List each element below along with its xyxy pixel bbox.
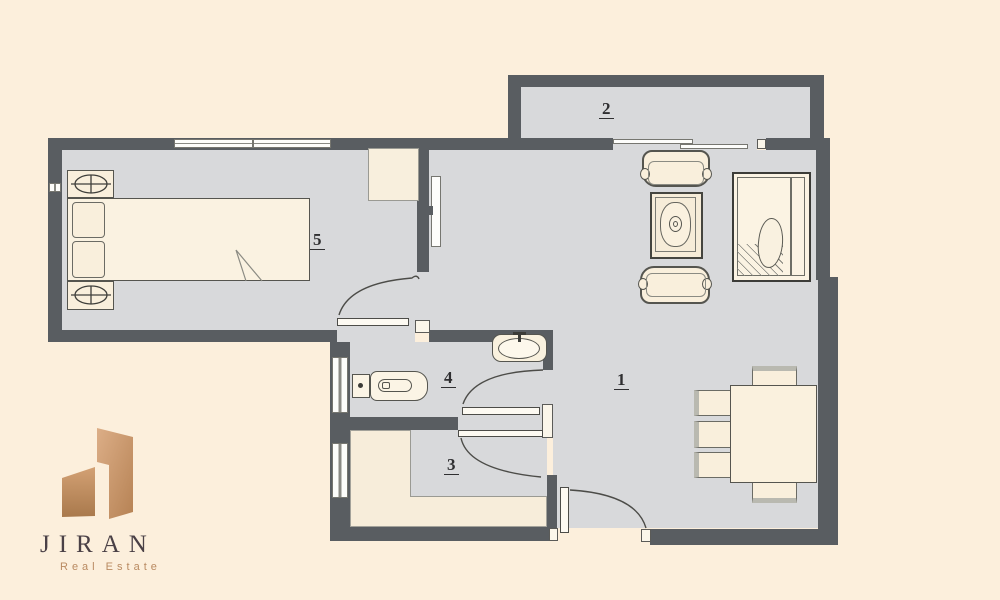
armchair-top xyxy=(642,150,710,187)
kitchen-floor xyxy=(410,430,547,497)
bathroom-door-jamb xyxy=(542,404,553,438)
bedroom-window-2 xyxy=(253,139,331,148)
room-label-living-room: 1 xyxy=(614,371,629,390)
dining-table xyxy=(730,385,817,483)
entrance-jamb-left xyxy=(549,528,558,541)
balcony-floor xyxy=(521,87,810,139)
rug-center-icon xyxy=(669,216,682,232)
wall-right-upper xyxy=(816,150,830,280)
tv-cabinet-divider xyxy=(790,177,792,276)
toilet-bowl-inner xyxy=(378,379,412,392)
wall-entry-stub xyxy=(547,475,557,531)
dining-chair-bottom xyxy=(752,481,797,503)
armchair-seat-line xyxy=(648,161,704,185)
shaft-window-2 xyxy=(332,443,348,498)
toilet-flush-dot xyxy=(358,383,363,388)
balcony-wall-right xyxy=(810,87,824,140)
dining-chair-left-3 xyxy=(694,452,734,478)
bed-pillow-2 xyxy=(72,241,105,278)
slider-jamb xyxy=(757,139,766,149)
floor-plan-canvas: 1 2 3 4 5 JIRAN Real Estate xyxy=(0,0,1000,600)
nightstand-bottom xyxy=(67,281,114,310)
room-label-kitchen: 3 xyxy=(444,456,459,475)
bathroom-sink xyxy=(492,334,547,362)
wall-bottom-left xyxy=(330,527,557,541)
bedroom-window-1 xyxy=(174,139,253,148)
left-wall-vent xyxy=(49,183,61,192)
wall-bathroom-bottom xyxy=(330,417,458,430)
bed-pillow-1 xyxy=(72,202,105,238)
toilet-tank xyxy=(352,374,370,398)
bedroom-door-leaf xyxy=(337,318,409,326)
bedroom-closet xyxy=(368,148,419,201)
wall-right-lower xyxy=(818,277,838,545)
dining-chair-left-1 xyxy=(694,390,734,416)
room-label-bathroom: 4 xyxy=(441,369,456,388)
kitchen-door-leaf xyxy=(458,430,543,437)
room-label-balcony: 2 xyxy=(599,100,614,119)
area-rug xyxy=(650,192,703,259)
room-label-bedroom: 5 xyxy=(310,231,325,250)
shaft-window-1 xyxy=(332,357,348,413)
brand-name: JIRAN xyxy=(40,531,156,559)
balcony-wall-left xyxy=(508,75,521,140)
brand-logo-icon xyxy=(55,420,145,525)
entrance-jamb-right xyxy=(641,529,651,542)
armchair-seat-line xyxy=(646,273,706,297)
bedroom-sliding-door-handle xyxy=(428,206,433,215)
wall-left xyxy=(48,138,62,342)
bedroom-door-jamb xyxy=(415,320,430,333)
balcony-wall-top xyxy=(508,75,824,87)
bathroom-door-leaf xyxy=(462,407,540,415)
entrance-door-leaf xyxy=(560,487,569,533)
wall-bottom-right xyxy=(650,529,838,545)
dining-chair-left-2 xyxy=(694,421,734,448)
bathroom-door-gap xyxy=(455,417,543,430)
balcony-slider-panel-2 xyxy=(680,144,748,149)
tv-cabinet xyxy=(732,172,811,282)
nightstand-top xyxy=(67,170,114,198)
sink-tap-bar-icon xyxy=(513,332,526,335)
toilet-bowl xyxy=(370,371,428,401)
wall-bedroom-bottom-left xyxy=(48,330,337,342)
brand-tagline: Real Estate xyxy=(60,561,161,573)
bedroom-door-gap xyxy=(337,330,415,342)
armchair-bottom xyxy=(640,266,710,304)
